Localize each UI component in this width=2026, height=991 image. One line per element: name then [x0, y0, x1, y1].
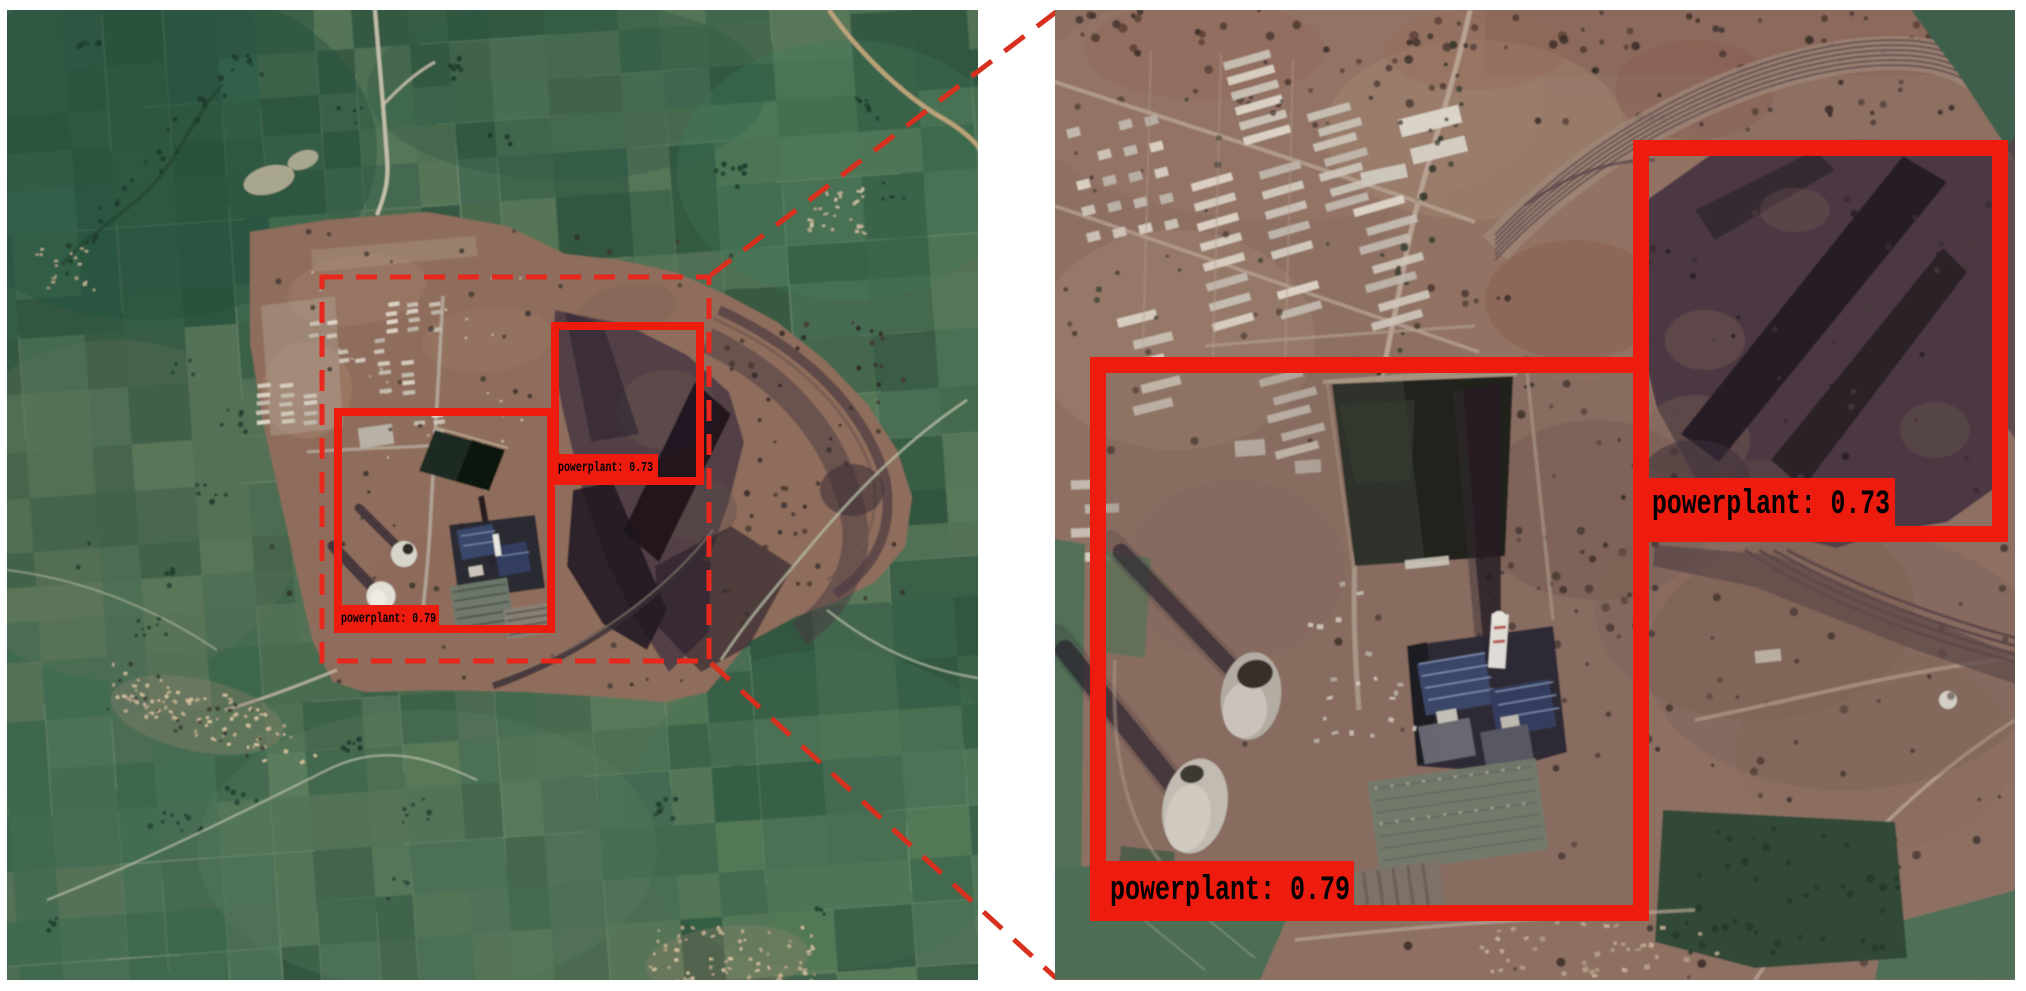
svg-text:powerplant: 0.73: powerplant: 0.73 [1652, 486, 1890, 524]
svg-text:powerplant: 0.79: powerplant: 0.79 [1110, 872, 1350, 910]
svg-text:powerplant: 0.79: powerplant: 0.79 [341, 611, 436, 627]
svg-text:powerplant: 0.73: powerplant: 0.73 [558, 460, 653, 476]
